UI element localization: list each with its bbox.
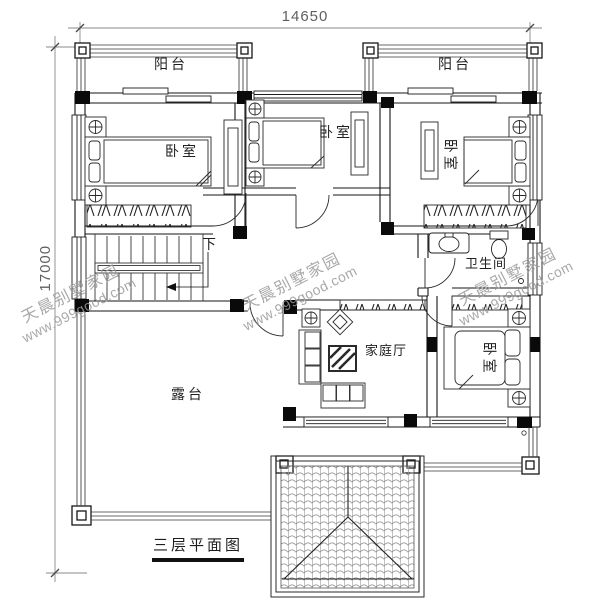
label-bedroom-bottom-right: 卧室 — [481, 331, 496, 387]
furniture-bedroom-top-middle — [246, 100, 368, 186]
page-title: 三层平面图 — [150, 538, 246, 555]
label-terrace: 露台 — [164, 387, 212, 402]
dimension-top: 14650 — [270, 9, 340, 26]
label-balcony-left: 阳台 — [145, 57, 197, 72]
porch-roof — [271, 456, 424, 597]
label-stairs-down: 下 — [202, 237, 222, 252]
title-underline — [152, 558, 244, 562]
floorplan-canvas: 14650 17000 阳台 阳台 卧室 卧室 卧室 卧室 卫生间 家庭厅 露台… — [0, 0, 600, 600]
furniture-bedroom-top-left — [85, 117, 242, 227]
label-bedroom-top-middle: 卧室 — [310, 125, 362, 140]
label-balcony-right: 阳台 — [429, 57, 481, 72]
label-family-hall: 家庭厅 — [356, 344, 416, 358]
dimension-left: 17000 — [38, 242, 55, 294]
furniture-bedroom-top-right — [421, 117, 530, 228]
label-bedroom-top-right: 卧室 — [442, 128, 457, 184]
label-bedroom-top-left: 卧室 — [156, 144, 208, 159]
